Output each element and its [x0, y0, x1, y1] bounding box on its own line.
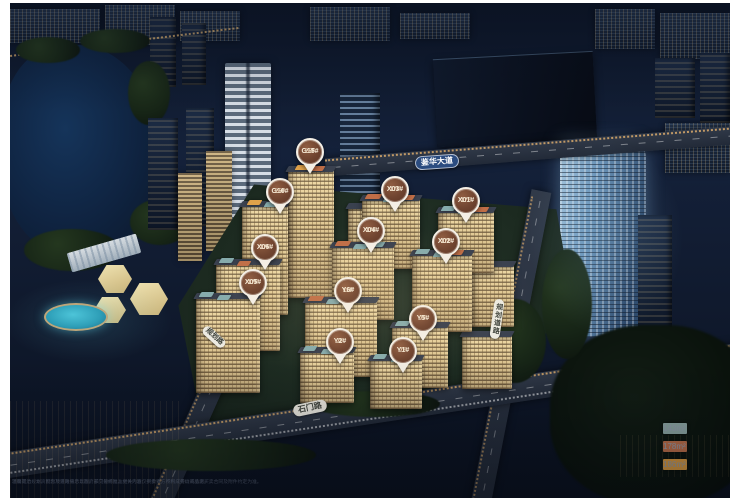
pin-disc: X05#17F: [239, 269, 267, 297]
far-city-block: [595, 9, 655, 49]
pavilion-hexagon: [130, 283, 168, 315]
roof-area-tag: [335, 241, 352, 246]
office-tower: [148, 118, 178, 230]
building-filler: [462, 335, 512, 389]
building-pin-Y6: Y6#11F: [333, 277, 363, 317]
building-pin-X06: X06#17F: [250, 234, 280, 274]
aerial-rendering: 鉴华大道石门路规划路规划道路 G15#25FG10#25FX03#17FX01#…: [10, 3, 730, 498]
building-X05: [196, 297, 260, 393]
building-pin-X01: X01#17F: [451, 187, 481, 227]
convention-hall: [433, 51, 597, 147]
pin-disc: Y1#7F: [389, 337, 417, 365]
pin-disc: X01#17F: [452, 187, 480, 215]
road-label: 鉴华大道: [415, 153, 460, 170]
distant-tower: [655, 58, 695, 118]
pin-disc: X06#17F: [251, 234, 279, 262]
pin-floor-count: 25F: [305, 149, 315, 156]
roof-area-tag: [308, 296, 325, 301]
pin-disc: Y2#7F: [326, 328, 354, 356]
park-trees: [80, 29, 150, 53]
pin-floor-count: 25F: [275, 189, 285, 196]
far-city-block: [310, 7, 390, 41]
pin-floor-count: 17F: [390, 187, 400, 194]
pin-disc: G15#25F: [296, 138, 324, 166]
pin-disc: X04#17F: [357, 217, 385, 245]
area-legend: 143m²178m²186m²: [663, 428, 727, 482]
building-pin-X05: X05#17F: [238, 269, 268, 309]
building-pin-X04: X04#17F: [356, 217, 386, 257]
far-city-block: [400, 13, 470, 39]
pin-disc: G10#25F: [266, 178, 294, 206]
pin-floor-count: 7F: [419, 316, 426, 323]
building-pin-G10: G10#25F: [265, 178, 295, 218]
building-pin-X02: X02#17F: [431, 228, 461, 268]
building-pin-X03: X03#17F: [380, 176, 410, 216]
pin-disc: Y6#11F: [334, 277, 362, 305]
pin-floor-count: 17F: [441, 239, 451, 246]
pin-floor-count: 7F: [399, 348, 406, 355]
street-trees: [106, 439, 316, 471]
pin-disc: X03#17F: [381, 176, 409, 204]
legend-area-label: 178m²: [663, 442, 686, 451]
legend-area-label: 143m²: [663, 424, 686, 433]
lit-tower: [178, 173, 202, 261]
building-pin-Y1: Y1#7F: [388, 337, 418, 377]
white-frame: 鉴华大道石门路规划路规划道路 G15#25FG10#25FX03#17FX01#…: [0, 0, 740, 501]
pin-disc: X02#17F: [432, 228, 460, 256]
tower-annex: [638, 215, 672, 335]
swimming-pool: [44, 303, 108, 331]
pin-floor-count: 17F: [260, 245, 270, 252]
pavilion-hexagon: [98, 265, 132, 293]
building-pin-Y2: Y2#7F: [325, 328, 355, 368]
pin-floor-count: 11F: [343, 288, 353, 295]
pin-floor-count: 17F: [248, 280, 258, 287]
site-trees: [542, 249, 592, 359]
distant-tower: [700, 53, 730, 123]
building-pin-G15: G15#25F: [295, 138, 325, 178]
park-trees: [16, 37, 80, 63]
pin-floor-count: 17F: [461, 198, 471, 205]
legend-area-label: 186m²: [663, 460, 686, 469]
disclaimer-line-2: 项目周边规划、配套及道路信息以政府部门最终批准文件为准，买卖双方权利义务以商品房…: [12, 480, 262, 486]
park-trees: [128, 61, 170, 125]
pin-floor-count: 7F: [336, 339, 343, 346]
pin-floor-count: 17F: [366, 228, 376, 235]
pin-disc: Y5#7F: [409, 305, 437, 333]
